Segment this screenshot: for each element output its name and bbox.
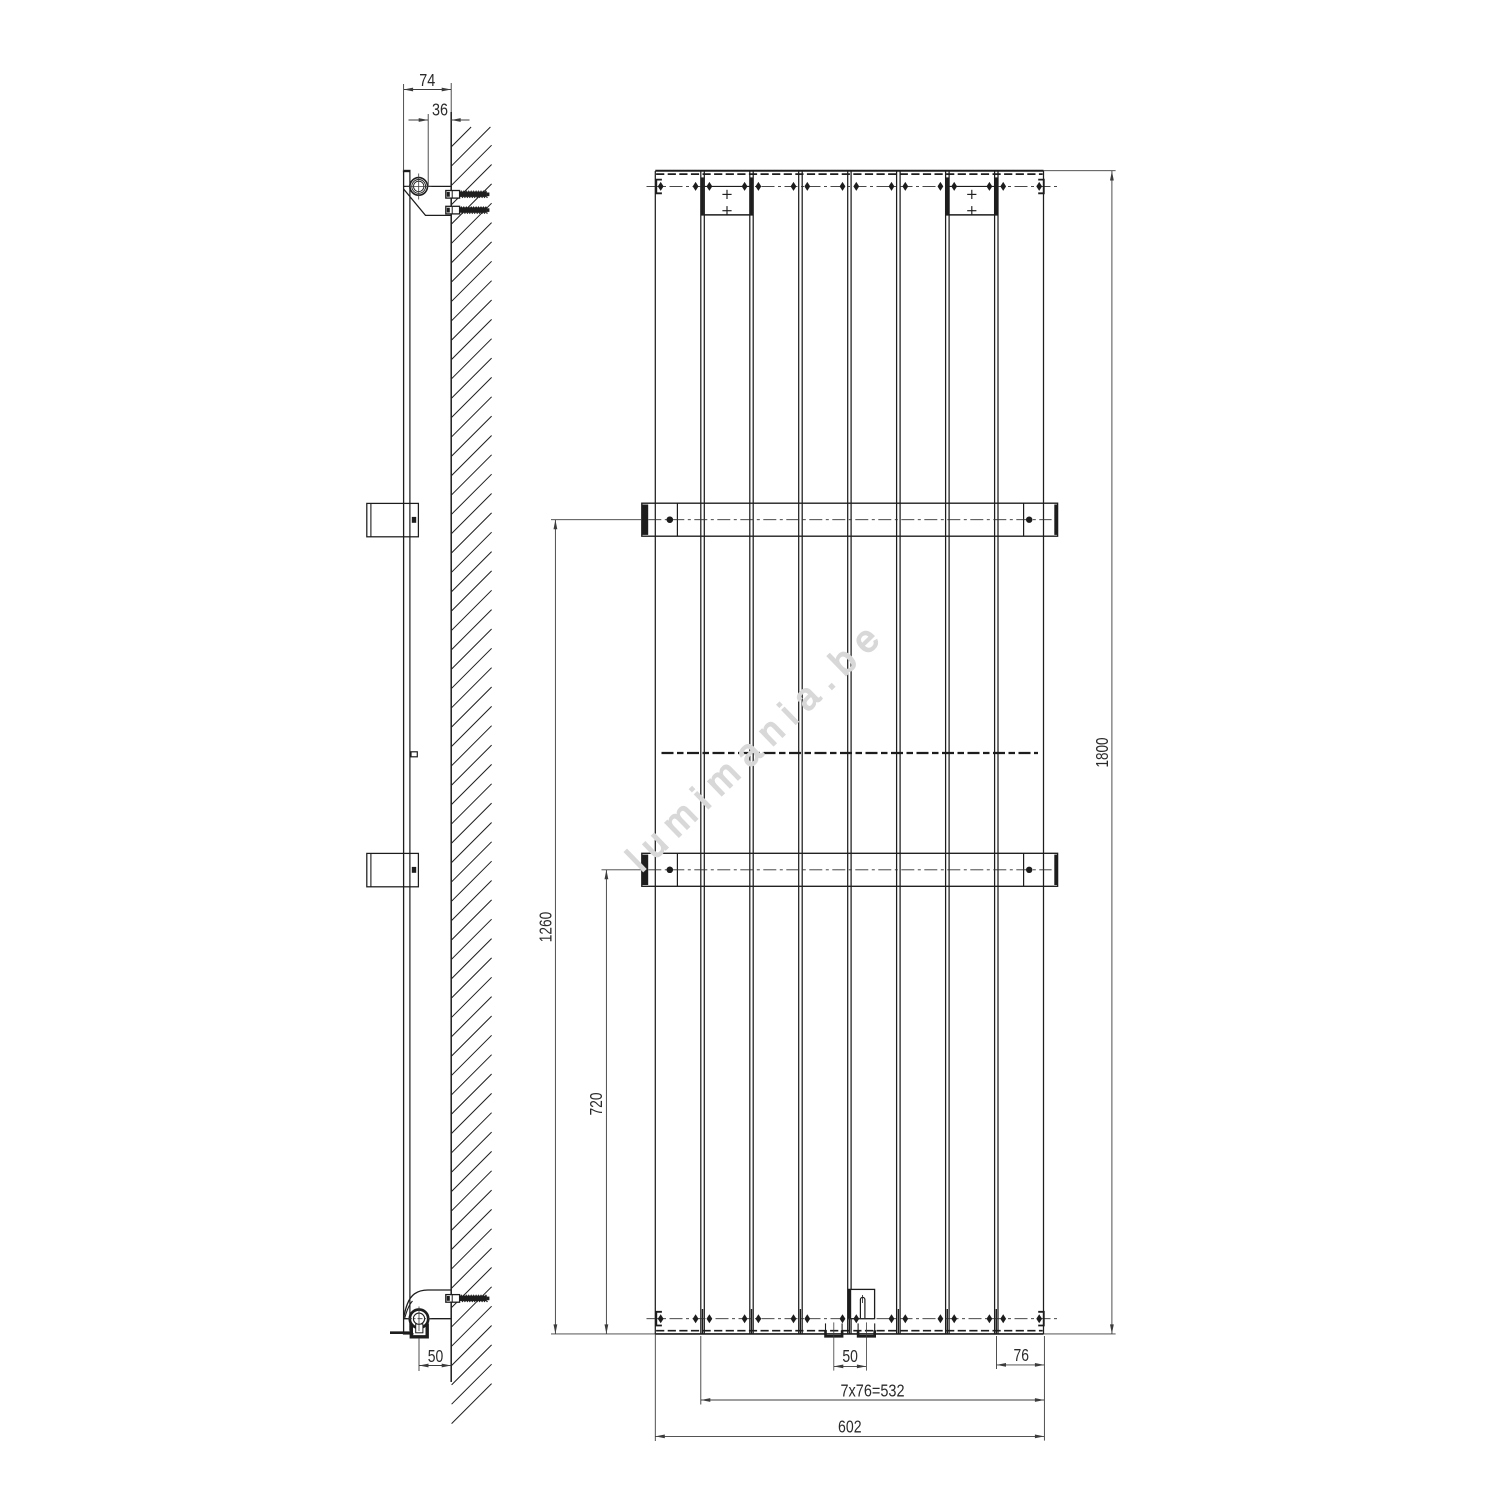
svg-text:74: 74 bbox=[419, 70, 435, 90]
svg-text:7x76=532: 7x76=532 bbox=[841, 1380, 905, 1400]
svg-text:50: 50 bbox=[428, 1346, 444, 1366]
svg-text:50: 50 bbox=[842, 1346, 858, 1366]
svg-text:602: 602 bbox=[838, 1417, 862, 1437]
svg-text:720: 720 bbox=[586, 1092, 606, 1115]
svg-text:76: 76 bbox=[1014, 1345, 1030, 1365]
svg-text:1800: 1800 bbox=[1092, 737, 1112, 767]
svg-text:1260: 1260 bbox=[536, 912, 556, 943]
svg-text:36: 36 bbox=[432, 100, 448, 120]
